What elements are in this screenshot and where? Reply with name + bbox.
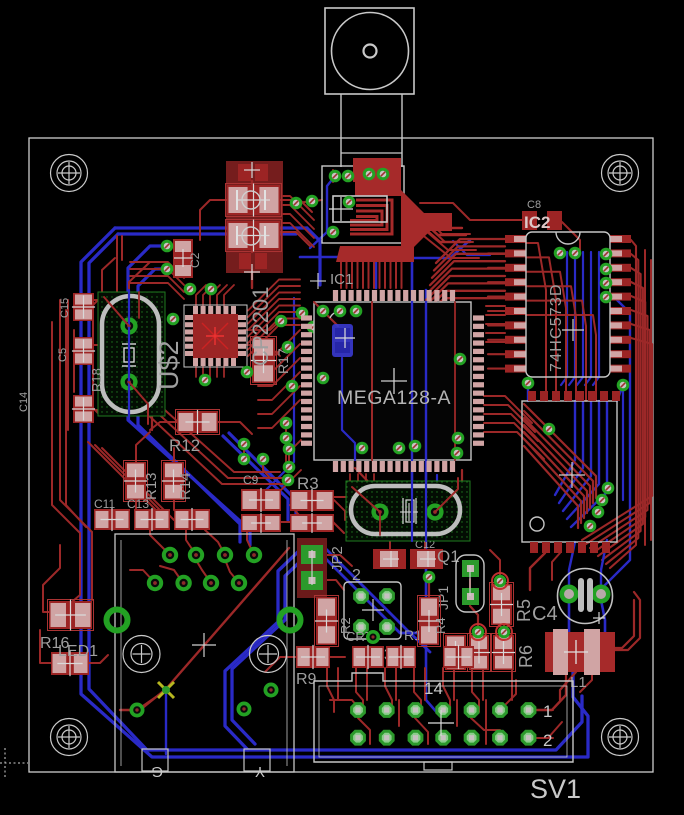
svg-text:14: 14 — [424, 679, 443, 698]
svg-text:LED1: LED1 — [58, 643, 98, 660]
svg-text:R12: R12 — [169, 436, 200, 455]
svg-text:CP2201: CP2201 — [248, 286, 273, 366]
svg-text:C5: C5 — [57, 348, 69, 362]
svg-text:IC2: IC2 — [524, 213, 550, 232]
svg-text:C15: C15 — [59, 298, 71, 318]
svg-text:R18: R18 — [89, 368, 104, 392]
svg-text:R5: R5 — [514, 599, 534, 622]
svg-text:R13: R13 — [143, 472, 160, 500]
svg-text:74HC573D: 74HC573D — [548, 283, 565, 372]
svg-text:R2: R2 — [338, 617, 353, 634]
svg-text:C14: C14 — [18, 392, 30, 412]
svg-text:2: 2 — [543, 731, 552, 750]
svg-text:C9: C9 — [243, 473, 259, 487]
svg-text:C4: C4 — [532, 603, 558, 625]
svg-text:C13: C13 — [127, 497, 149, 511]
svg-text:C8: C8 — [527, 199, 541, 211]
svg-text:U$2: U$2 — [154, 340, 184, 390]
svg-text:JP2: JP2 — [329, 546, 346, 572]
svg-text:Y: Y — [255, 763, 265, 780]
svg-text:IC1: IC1 — [330, 271, 353, 288]
svg-text:SV1: SV1 — [530, 774, 581, 804]
svg-text:G: G — [151, 763, 163, 780]
svg-text:R4: R4 — [433, 617, 448, 634]
svg-text:R14: R14 — [177, 472, 194, 500]
svg-text:1: 1 — [543, 702, 552, 721]
svg-text:R6: R6 — [516, 645, 536, 668]
svg-text:C2: C2 — [188, 252, 202, 268]
